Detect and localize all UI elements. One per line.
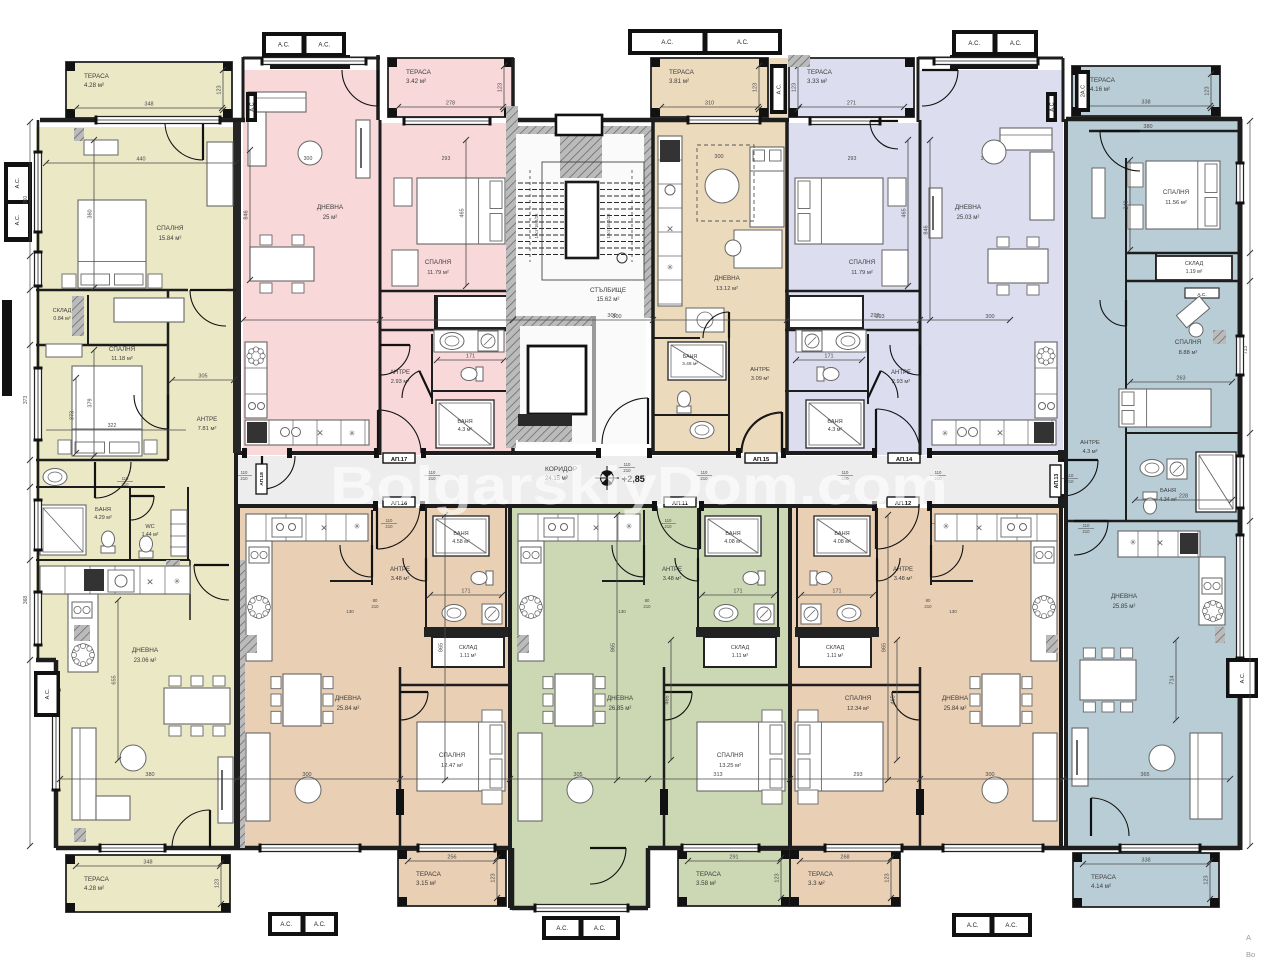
svg-text:23.06 м²: 23.06 м² <box>134 658 157 664</box>
svg-text:13.12 м²: 13.12 м² <box>716 286 738 292</box>
svg-text:4.29 м²: 4.29 м² <box>94 515 112 521</box>
svg-text:A.C.: A.C. <box>556 926 568 932</box>
svg-text:СТЪЛБИЩЕ: СТЪЛБИЩЕ <box>590 287 626 294</box>
svg-text:110: 110 <box>386 518 393 523</box>
svg-text:110: 110 <box>122 476 129 481</box>
svg-text:3.58 м²: 3.58 м² <box>696 880 716 887</box>
svg-text:A.C.: A.C. <box>1005 923 1017 929</box>
svg-text:A.C.: A.C. <box>1010 41 1022 47</box>
svg-text:300: 300 <box>985 772 994 778</box>
svg-text:WC: WC <box>145 524 154 530</box>
svg-text:123: 123 <box>215 879 221 888</box>
svg-text:130: 130 <box>949 609 957 614</box>
svg-text:110: 110 <box>1083 523 1090 528</box>
svg-text:СПАЛНЯ: СПАЛНЯ <box>845 695 871 702</box>
svg-text:465: 465 <box>665 695 671 704</box>
svg-text:3.48 м²: 3.48 м² <box>894 576 913 582</box>
svg-text:26.85 м²: 26.85 м² <box>609 706 632 712</box>
svg-text:130: 130 <box>346 609 354 614</box>
svg-text:А.С.: А.С. <box>1240 672 1246 683</box>
svg-text:25.85 м²: 25.85 м² <box>1113 604 1136 610</box>
svg-text:3.42 м²: 3.42 м² <box>406 78 426 85</box>
svg-text:12.34 м²: 12.34 м² <box>847 706 869 712</box>
svg-text:ТЕРАСА: ТЕРАСА <box>1090 77 1116 84</box>
svg-text:11.18 м²: 11.18 м² <box>111 356 133 362</box>
svg-text:25.84 м²: 25.84 м² <box>944 706 967 712</box>
svg-text:A.C.: A.C. <box>737 40 749 46</box>
svg-text:СКЛАД: СКЛАД <box>53 308 72 314</box>
svg-text:322: 322 <box>108 423 117 429</box>
svg-text:338: 338 <box>1141 100 1150 106</box>
svg-text:271: 271 <box>847 101 856 107</box>
svg-text:А.С.: А.С. <box>15 177 21 188</box>
svg-text:БАНЯ: БАНЯ <box>683 354 697 360</box>
svg-text:210: 210 <box>643 604 651 609</box>
svg-text:✕: ✕ <box>592 523 600 533</box>
svg-text:2А.С: 2А.С <box>1081 85 1087 97</box>
svg-text:3.09 м²: 3.09 м² <box>751 376 769 382</box>
svg-text:БАНЯ: БАНЯ <box>95 507 111 513</box>
svg-text:ДНЕВНА: ДНЕВНА <box>607 695 634 702</box>
svg-text:18ст 16.2/28: 18ст 16.2/28 <box>606 213 611 239</box>
svg-text:293: 293 <box>853 772 862 778</box>
svg-text:ТЕРАСА: ТЕРАСА <box>84 876 110 883</box>
svg-text:1.19 м²: 1.19 м² <box>1186 269 1203 275</box>
svg-text:BolgarskiyDom.com: BolgarskiyDom.com <box>330 456 948 516</box>
svg-text:15.62 м²: 15.62 м² <box>597 297 620 303</box>
svg-text:ДНЕВНА: ДНЕВНА <box>1111 593 1138 600</box>
svg-text:ДНЕВНА: ДНЕВНА <box>335 695 362 702</box>
svg-text:465: 465 <box>891 695 897 704</box>
svg-text:4.3 м²: 4.3 м² <box>1082 449 1097 455</box>
svg-text:БАНЯ: БАНЯ <box>827 419 842 425</box>
svg-text:300: 300 <box>304 156 313 162</box>
svg-text:АП.18: АП.18 <box>259 472 265 486</box>
svg-text:440: 440 <box>136 157 145 163</box>
svg-text:313: 313 <box>713 772 722 778</box>
svg-text:АНТРЕ: АНТРЕ <box>390 567 410 573</box>
svg-text:✕: ✕ <box>316 428 324 438</box>
svg-text:123: 123 <box>1205 86 1211 95</box>
svg-text:✳: ✳ <box>349 429 356 438</box>
svg-text:171: 171 <box>733 589 742 595</box>
svg-text:✳: ✳ <box>1130 538 1137 547</box>
svg-text:210: 210 <box>1082 529 1090 534</box>
svg-text:110: 110 <box>665 518 672 523</box>
svg-text:АНТРЕ: АНТРЕ <box>1080 440 1100 446</box>
svg-text:A.C.: A.C. <box>314 922 326 928</box>
svg-text:380: 380 <box>1143 124 1152 130</box>
svg-text:СПАЛНЯ: СПАЛНЯ <box>109 346 135 353</box>
svg-text:АП.13: АП.13 <box>1054 474 1060 489</box>
svg-text:210: 210 <box>371 604 379 609</box>
svg-text:171: 171 <box>824 354 833 360</box>
svg-text:305: 305 <box>573 772 582 778</box>
svg-text:3.33 м²: 3.33 м² <box>807 78 827 85</box>
svg-text:4.08 м²: 4.08 м² <box>724 539 742 545</box>
svg-text:3.3 м²: 3.3 м² <box>808 880 825 887</box>
svg-text:210: 210 <box>924 604 932 609</box>
svg-text:4.3 м²: 4.3 м² <box>458 427 473 433</box>
svg-text:✕: ✕ <box>996 428 1004 438</box>
svg-text:БАНЯ: БАНЯ <box>453 531 468 537</box>
svg-text:130: 130 <box>618 609 626 614</box>
svg-text:СКЛАД: СКЛАД <box>1185 261 1204 267</box>
svg-text:171: 171 <box>466 354 475 360</box>
svg-text:713: 713 <box>1243 346 1249 355</box>
svg-text:А.С.: А.С. <box>45 688 51 699</box>
svg-text:80: 80 <box>645 598 650 603</box>
svg-text:171: 171 <box>461 589 470 595</box>
svg-text:ТЕРАСА: ТЕРАСА <box>807 69 833 76</box>
svg-text:256: 256 <box>447 855 456 861</box>
svg-text:4.08 м²: 4.08 м² <box>833 539 851 545</box>
svg-text:А.С: А.С <box>250 102 256 111</box>
svg-text:1.11 м²: 1.11 м² <box>460 653 477 659</box>
svg-text:7.81 м²: 7.81 м² <box>198 426 217 432</box>
svg-text:123: 123 <box>491 873 497 882</box>
svg-text:18ст 16.2/28: 18ст 16.2/28 <box>534 213 539 239</box>
svg-text:8.88 м²: 8.88 м² <box>1179 350 1198 356</box>
svg-text:465: 465 <box>460 208 466 217</box>
svg-text:210: 210 <box>121 482 129 487</box>
svg-text:ТЕРАСА: ТЕРАСА <box>669 69 695 76</box>
svg-text:846: 846 <box>244 210 250 219</box>
svg-text:A.C.: A.C. <box>967 923 979 929</box>
svg-text:25.03 м²: 25.03 м² <box>957 215 980 221</box>
svg-text:АНТРЕ: АНТРЕ <box>662 567 682 573</box>
svg-text:300: 300 <box>985 314 994 320</box>
svg-text:СПАЛНЯ: СПАЛНЯ <box>156 225 183 232</box>
svg-text:3.48 м²: 3.48 м² <box>663 576 682 582</box>
svg-text:123: 123 <box>217 85 223 94</box>
svg-text:373: 373 <box>23 396 29 405</box>
svg-text:338: 338 <box>1141 858 1150 864</box>
svg-text:123: 123 <box>885 873 891 882</box>
svg-text:✕: ✕ <box>666 224 674 234</box>
svg-text:379: 379 <box>88 398 94 407</box>
svg-text:171: 171 <box>832 589 841 595</box>
svg-text:✳: ✳ <box>354 522 361 531</box>
svg-text:ДНЕВНА: ДНЕВНА <box>714 275 740 282</box>
svg-text:360: 360 <box>23 196 29 205</box>
svg-text:80: 80 <box>926 598 931 603</box>
svg-text:ТЕРАСА: ТЕРАСА <box>84 73 110 80</box>
svg-text:15.84 м²: 15.84 м² <box>159 236 182 242</box>
svg-text:А.С: А.С <box>1050 102 1056 111</box>
svg-text:A.C.: A.C. <box>280 922 292 928</box>
svg-text:25.84 м²: 25.84 м² <box>337 706 360 712</box>
svg-text:АНТРЕ: АНТРЕ <box>893 567 913 573</box>
svg-text:123: 123 <box>792 83 798 92</box>
svg-text:ДНЕВНА: ДНЕВНА <box>132 647 159 654</box>
svg-text:✕: ✕ <box>1156 538 1164 548</box>
svg-text:4.14 м²: 4.14 м² <box>1091 883 1111 890</box>
svg-text:123: 123 <box>753 83 759 92</box>
svg-text:СПАЛНЯ: СПАЛНЯ <box>1163 189 1189 196</box>
svg-text:263: 263 <box>1176 376 1185 382</box>
svg-text:✕: ✕ <box>146 577 154 587</box>
svg-text:ТЕРАСА: ТЕРАСА <box>416 871 442 878</box>
svg-text:A.C.: A.C. <box>318 43 330 49</box>
svg-text:865: 865 <box>439 643 445 652</box>
svg-text:1.11 м²: 1.11 м² <box>827 653 844 659</box>
svg-text:A.C.: A.C. <box>968 41 980 47</box>
svg-text:СПАЛНЯ: СПАЛНЯ <box>717 752 743 759</box>
svg-text:655: 655 <box>112 675 118 684</box>
svg-text:123: 123 <box>775 873 781 882</box>
svg-text:✳: ✳ <box>943 522 950 531</box>
svg-text:АНТРЕ: АНТРЕ <box>197 416 218 423</box>
svg-text:293: 293 <box>442 156 451 162</box>
svg-text:80: 80 <box>373 598 378 603</box>
svg-text:✳: ✳ <box>174 577 181 586</box>
svg-text:Во: Во <box>1246 950 1255 959</box>
svg-text:300: 300 <box>714 154 723 160</box>
svg-text:БАНЯ: БАНЯ <box>725 531 740 537</box>
svg-text:ТЕРАСА: ТЕРАСА <box>696 871 722 878</box>
svg-text:310: 310 <box>705 101 714 107</box>
svg-text:СПАЛНЯ: СПАЛНЯ <box>1175 339 1201 346</box>
svg-text:ДНЕВНА: ДНЕВНА <box>942 695 969 702</box>
svg-text:293: 293 <box>848 156 857 162</box>
svg-text:✳: ✳ <box>626 522 633 531</box>
svg-text:ТЕРАСА: ТЕРАСА <box>808 871 834 878</box>
svg-text:865: 865 <box>882 643 888 652</box>
svg-text:373: 373 <box>70 411 76 420</box>
svg-text:714: 714 <box>1170 675 1176 684</box>
svg-text:A.C.: A.C. <box>661 40 673 46</box>
svg-text:865: 865 <box>611 643 617 652</box>
svg-text:11.79 м²: 11.79 м² <box>851 270 873 276</box>
svg-text:БАНЯ: БАНЯ <box>457 419 472 425</box>
svg-text:4.3 м²: 4.3 м² <box>828 427 843 433</box>
svg-text:А.С.: А.С. <box>777 83 783 94</box>
svg-text:✳: ✳ <box>667 263 674 272</box>
svg-text:0.84 м²: 0.84 м² <box>53 316 70 322</box>
svg-text:СПАЛНЯ: СПАЛНЯ <box>439 752 465 759</box>
svg-text:ДНЕВНА: ДНЕВНА <box>317 204 344 211</box>
svg-text:291: 291 <box>729 855 738 861</box>
svg-text:300: 300 <box>302 772 311 778</box>
svg-text:228: 228 <box>1179 494 1188 500</box>
svg-text:А.С.: А.С. <box>15 214 21 225</box>
svg-text:293: 293 <box>870 313 879 319</box>
svg-text:ТЕРАСА: ТЕРАСА <box>406 69 432 76</box>
svg-text:210: 210 <box>240 476 248 481</box>
svg-text:✕: ✕ <box>975 523 983 533</box>
svg-text:305: 305 <box>198 374 207 380</box>
svg-text:A.C.: A.C. <box>278 43 290 49</box>
svg-text:4.16 м²: 4.16 м² <box>1090 86 1110 93</box>
svg-text:3.81 м²: 3.81 м² <box>669 78 689 85</box>
svg-text:СКЛАД: СКЛАД <box>459 645 478 651</box>
svg-text:380: 380 <box>145 772 154 778</box>
svg-text:123: 123 <box>498 83 504 92</box>
svg-text:210: 210 <box>664 524 672 529</box>
svg-text:846: 846 <box>924 225 930 234</box>
svg-text:123: 123 <box>1204 875 1210 884</box>
svg-text:365: 365 <box>1140 772 1149 778</box>
svg-text:340: 340 <box>1124 200 1130 209</box>
svg-text:СПАЛНЯ: СПАЛНЯ <box>849 259 875 266</box>
svg-text:АНТРЕ: АНТРЕ <box>390 370 410 376</box>
svg-text:БАНЯ: БАНЯ <box>834 531 849 537</box>
svg-text:368: 368 <box>23 596 29 605</box>
svg-text:БАНЯ: БАНЯ <box>1160 488 1176 494</box>
svg-text:210: 210 <box>385 524 393 529</box>
svg-text:АНТРЕ: АНТРЕ <box>750 367 770 373</box>
svg-text:3.48 м²: 3.48 м² <box>682 361 698 367</box>
svg-text:3.15 м²: 3.15 м² <box>416 880 436 887</box>
svg-text:268: 268 <box>840 855 849 861</box>
svg-text:3.48 м²: 3.48 м² <box>391 576 410 582</box>
svg-text:ДНЕВНА: ДНЕВНА <box>955 204 982 211</box>
svg-text:A.C.: A.C. <box>594 926 606 932</box>
svg-text:4.58 м²: 4.58 м² <box>452 539 470 545</box>
svg-text:25 м²: 25 м² <box>323 215 337 221</box>
svg-text:348: 348 <box>144 102 153 108</box>
svg-text:110: 110 <box>241 470 248 475</box>
svg-text:ТЕРАСА: ТЕРАСА <box>1091 874 1117 881</box>
svg-text:360: 360 <box>88 209 94 218</box>
svg-text:✕: ✕ <box>320 523 328 533</box>
svg-text:1.11 м²: 1.11 м² <box>732 653 749 659</box>
svg-text:12.47 м²: 12.47 м² <box>441 763 463 769</box>
svg-text:300: 300 <box>607 313 616 319</box>
svg-text:А: А <box>1246 933 1251 942</box>
svg-text:13.25 м²: 13.25 м² <box>719 763 741 769</box>
svg-text:465: 465 <box>902 208 908 217</box>
svg-text:348: 348 <box>143 860 152 866</box>
svg-text:СКЛАД: СКЛАД <box>826 645 845 651</box>
svg-text:СКЛАД: СКЛАД <box>731 645 750 651</box>
svg-text:278: 278 <box>446 101 455 107</box>
svg-text:СПАЛНЯ: СПАЛНЯ <box>425 259 451 266</box>
svg-text:11.79 м²: 11.79 м² <box>427 270 449 276</box>
svg-text:4.28 м²: 4.28 м² <box>84 885 104 892</box>
svg-text:4.28 м²: 4.28 м² <box>84 82 104 89</box>
svg-text:11.56 м²: 11.56 м² <box>1165 200 1187 206</box>
svg-text:✳: ✳ <box>942 429 949 438</box>
